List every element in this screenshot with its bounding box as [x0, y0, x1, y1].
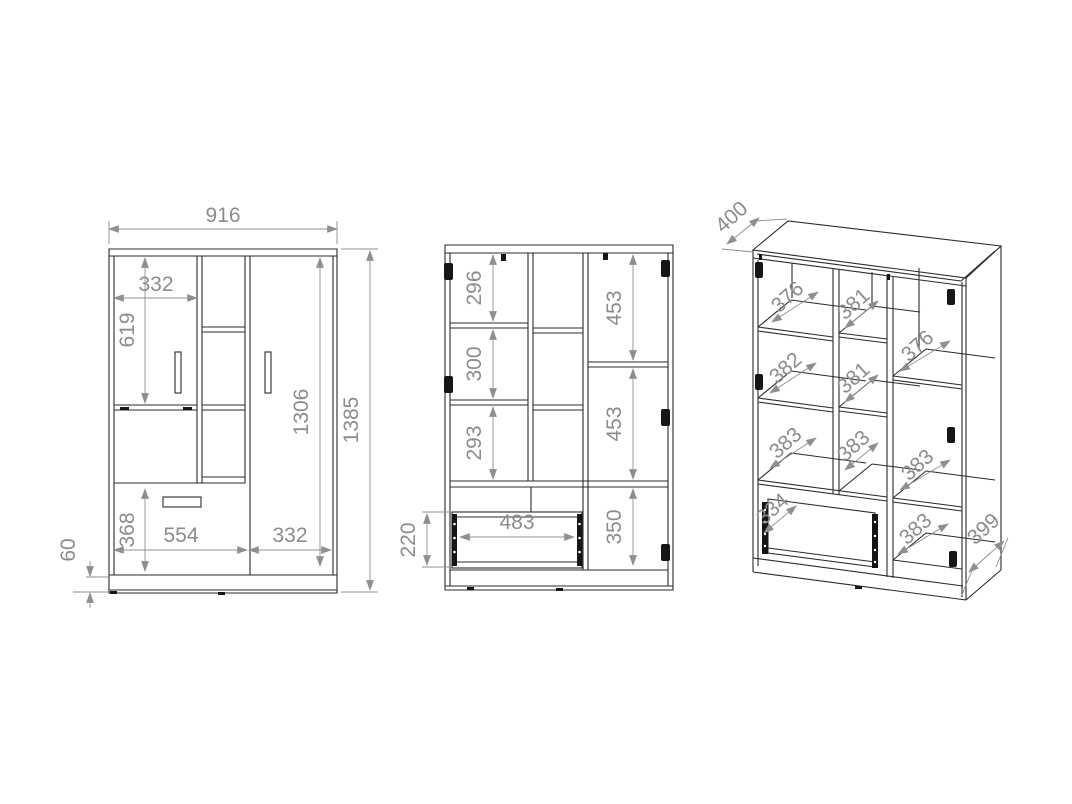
front-view-dimensions: 916 332 619 1306 1385 368 554 332 60: [57, 204, 378, 608]
hinge-icon: [444, 376, 453, 393]
dim-shelf-left-middle: 382: [765, 348, 806, 389]
dim-top-depth: 400: [711, 197, 752, 238]
hinge-icon: [661, 260, 670, 277]
dim-drawer-front-height: 368: [116, 512, 139, 547]
perspective-carcass: [753, 221, 1001, 600]
hinge-icon: [947, 289, 955, 305]
dim-shelf-left-top: 376: [767, 277, 808, 318]
dim-right-middle-cell: 453: [603, 406, 626, 441]
interior-view: 296 300 293 453 453 350 483 220: [397, 245, 673, 591]
dim-left-bottom-cell: 293: [463, 425, 486, 460]
dim-left-door-width: 332: [138, 273, 173, 296]
hinge-icon: [947, 427, 955, 443]
hinge-icon: [755, 262, 763, 278]
drawing-canvas: 916 332 619 1306 1385 368 554 332 60: [0, 0, 1072, 804]
front-view: 916 332 619 1306 1385 368 554 332 60: [57, 204, 378, 608]
hinge-icon: [661, 544, 670, 561]
fitting-marks: [467, 253, 608, 591]
dim-base-height: 60: [57, 538, 80, 561]
dim-left-door-height: 619: [116, 312, 139, 347]
right-door-handle: [265, 352, 271, 393]
dim-shelf-left-bottom: 383: [765, 423, 806, 464]
dim-base-depth: 399: [963, 509, 1004, 550]
furniture-dimension-drawing: 916 332 619 1306 1385 368 554 332 60: [0, 0, 1072, 804]
perspective-view: 400 399 376 381 382 381 376 383 383 383 …: [711, 197, 1008, 600]
dim-right-top-cell: 453: [603, 290, 626, 325]
hinge-icon: [949, 551, 957, 567]
drawer-slide-right: [577, 514, 582, 566]
hinge-icon: [755, 374, 763, 390]
dim-left-middle-cell: 300: [463, 346, 486, 381]
hinge-icon: [444, 263, 453, 280]
drawer-handle: [163, 497, 201, 507]
drawer-slide-left: [452, 514, 457, 566]
dim-shelf-right-middle: 383: [897, 445, 938, 486]
dim-right-door-height: 1306: [290, 389, 313, 436]
dim-right-door-width: 332: [272, 524, 307, 547]
dim-drawer-box-height: 220: [397, 522, 420, 557]
dim-drawer-width: 554: [163, 524, 198, 547]
dim-left-top-cell: 296: [463, 270, 486, 305]
dim-shelf-right-top: 376: [897, 326, 938, 367]
dim-shelf-right-bottom: 383: [895, 509, 936, 550]
perspective-dimensions: 400 399 376 381 382 381 376 383 383 383 …: [711, 197, 1008, 597]
interior-dimensions: 296 300 293 453 453 350 483 220: [397, 255, 633, 567]
dim-right-bottom-cell: 350: [603, 509, 626, 544]
dim-drawer-opening-width: 483: [499, 511, 534, 534]
dim-overall-width: 916: [205, 204, 240, 227]
left-door-handle: [175, 352, 181, 393]
hinge-icon: [661, 409, 670, 426]
dim-overall-height: 1385: [340, 397, 363, 444]
